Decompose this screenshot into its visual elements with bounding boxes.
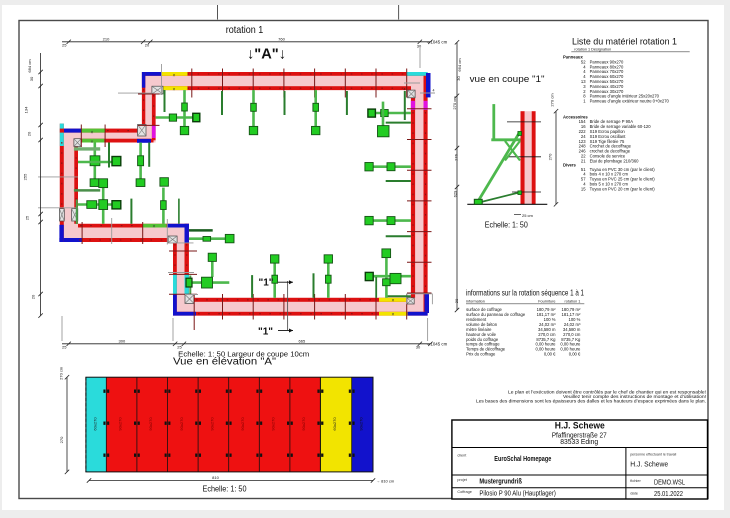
svg-text:30: 30 bbox=[456, 76, 461, 81]
svg-text:15: 15 bbox=[581, 186, 586, 191]
svg-text:760: 760 bbox=[278, 36, 285, 41]
svg-text:270: 270 bbox=[59, 436, 64, 443]
svg-text:×: × bbox=[392, 298, 395, 304]
svg-text:90x270: 90x270 bbox=[179, 417, 184, 431]
svg-text:↓"A"↓: ↓"A"↓ bbox=[247, 46, 286, 63]
svg-text:134: 134 bbox=[24, 106, 29, 113]
svg-text:→ 810 cm: → 810 cm bbox=[376, 478, 395, 483]
svg-text:20: 20 bbox=[454, 298, 459, 303]
svg-text:270 cm: 270 cm bbox=[452, 96, 457, 110]
svg-text:60x270: 60x270 bbox=[332, 417, 337, 431]
svg-text:4: 4 bbox=[433, 89, 435, 93]
svg-text:20: 20 bbox=[27, 131, 32, 136]
svg-text:×: × bbox=[91, 140, 94, 146]
svg-text:20: 20 bbox=[31, 294, 36, 299]
svg-text:90x270: 90x270 bbox=[148, 417, 153, 431]
svg-text:rotation 1: rotation 1 bbox=[226, 24, 264, 36]
svg-text:Fourniture: Fourniture bbox=[538, 299, 555, 303]
svg-text:Coffrage: Coffrage bbox=[457, 490, 472, 494]
svg-text:fichier: fichier bbox=[630, 478, 641, 483]
svg-text:→1045 cm: →1045 cm bbox=[426, 341, 448, 346]
svg-text:Prix du coffrage: Prix du coffrage bbox=[466, 352, 496, 357]
svg-text:90x270: 90x270 bbox=[240, 417, 245, 431]
svg-text:vue en coupe "1": vue en coupe "1" bbox=[470, 74, 545, 85]
svg-text:270 cm: 270 cm bbox=[550, 93, 555, 107]
svg-text:25: 25 bbox=[62, 344, 67, 349]
svg-text:30: 30 bbox=[416, 344, 421, 349]
svg-text:×: × bbox=[392, 312, 395, 318]
svg-text:30: 30 bbox=[29, 76, 34, 81]
svg-text:21: 21 bbox=[581, 158, 586, 163]
svg-text:20: 20 bbox=[145, 42, 150, 47]
svg-text:60x270: 60x270 bbox=[93, 417, 98, 431]
svg-text:90x270: 90x270 bbox=[209, 417, 214, 431]
svg-text:4: 4 bbox=[404, 88, 406, 92]
svg-text:276: 276 bbox=[454, 153, 459, 160]
svg-text:EuroSchal Homepage: EuroSchal Homepage bbox=[494, 456, 551, 463]
svg-text:Panneau d’angle extérieur neut: Panneau d’angle extérieur neutre 0+0x270 bbox=[590, 99, 670, 104]
svg-text:informations sur la rotation: informations sur la rotation séquence 1 … bbox=[466, 288, 584, 298]
svg-text:210: 210 bbox=[103, 36, 110, 41]
svg-text:rotation 1: rotation 1 bbox=[565, 299, 581, 303]
svg-text:Echelle: 1: 50: Echelle: 1: 50 bbox=[203, 483, 247, 493]
svg-text:×: × bbox=[91, 130, 94, 136]
svg-text:information: information bbox=[466, 299, 485, 303]
svg-text:0,00 €: 0,00 € bbox=[569, 352, 581, 357]
svg-text:0,00 €: 0,00 € bbox=[544, 352, 556, 357]
svg-text:date: date bbox=[630, 490, 639, 495]
svg-text:90x270: 90x270 bbox=[118, 417, 123, 431]
svg-text:25: 25 bbox=[177, 344, 182, 349]
svg-text:Pilosio P 90 Alu (Hauptlager): Pilosio P 90 Alu (Hauptlager) bbox=[479, 491, 556, 498]
svg-text:DEMO.WSL: DEMO.WSL bbox=[654, 480, 685, 487]
svg-text:×: × bbox=[173, 87, 176, 93]
svg-text:629: 629 bbox=[453, 190, 458, 197]
svg-text:Etai de plombage 210/360: Etai de plombage 210/360 bbox=[590, 158, 640, 163]
svg-text:684 cm: 684 cm bbox=[27, 59, 32, 73]
svg-text:255: 255 bbox=[23, 173, 28, 180]
svg-text:"1": "1" bbox=[258, 327, 273, 338]
svg-text:665: 665 bbox=[299, 338, 306, 343]
svg-text:Divers: Divers bbox=[563, 162, 576, 167]
svg-text:25: 25 bbox=[62, 42, 67, 47]
svg-text:270 cm: 270 cm bbox=[59, 366, 64, 380]
svg-text:personne effectuant le travail: personne effectuant le travail bbox=[630, 453, 676, 457]
svg-text:client: client bbox=[457, 453, 467, 457]
svg-text:90x270: 90x270 bbox=[301, 417, 306, 431]
svg-text:300: 300 bbox=[119, 338, 126, 343]
svg-text:Mustergrundriß: Mustergrundriß bbox=[479, 478, 522, 485]
svg-text:83533 Eding: 83533 Eding bbox=[560, 437, 598, 446]
svg-text:1: 1 bbox=[583, 99, 586, 104]
svg-text:Echelle: 1: 50: Echelle: 1: 50 bbox=[485, 219, 528, 229]
svg-text:25 cm: 25 cm bbox=[522, 213, 534, 218]
svg-text:90x270: 90x270 bbox=[359, 417, 364, 431]
svg-text:Vue en élévation "A": Vue en élévation "A" bbox=[173, 357, 277, 368]
svg-text:Liste du matériel rotation 1: Liste du matériel rotation 1 bbox=[572, 37, 677, 47]
svg-text:Les bases des dimensions sont: Les bases des dimensions sont les épaiss… bbox=[476, 399, 706, 404]
svg-text:×: × bbox=[153, 224, 156, 230]
svg-text:Tuyau en PVC 20 cm (par le cli: Tuyau en PVC 20 cm (par le client) bbox=[590, 186, 656, 191]
svg-text:90x270: 90x270 bbox=[271, 417, 276, 431]
svg-text:30: 30 bbox=[417, 44, 422, 49]
svg-text:270: 270 bbox=[548, 153, 553, 160]
svg-text:"1": "1" bbox=[259, 278, 274, 289]
svg-text:×: × bbox=[173, 73, 176, 79]
svg-text:projet: projet bbox=[457, 478, 467, 482]
svg-text:rotation 1 Désignation: rotation 1 Désignation bbox=[574, 48, 611, 52]
svg-text:664 cm: 664 cm bbox=[457, 58, 462, 72]
svg-text:25: 25 bbox=[25, 215, 30, 220]
svg-text:H.J. Schewe: H.J. Schewe bbox=[630, 462, 668, 469]
svg-text:810: 810 bbox=[212, 475, 219, 480]
svg-text:→1045 cm: →1045 cm bbox=[426, 39, 448, 44]
svg-text:25.01.2022: 25.01.2022 bbox=[654, 491, 683, 498]
